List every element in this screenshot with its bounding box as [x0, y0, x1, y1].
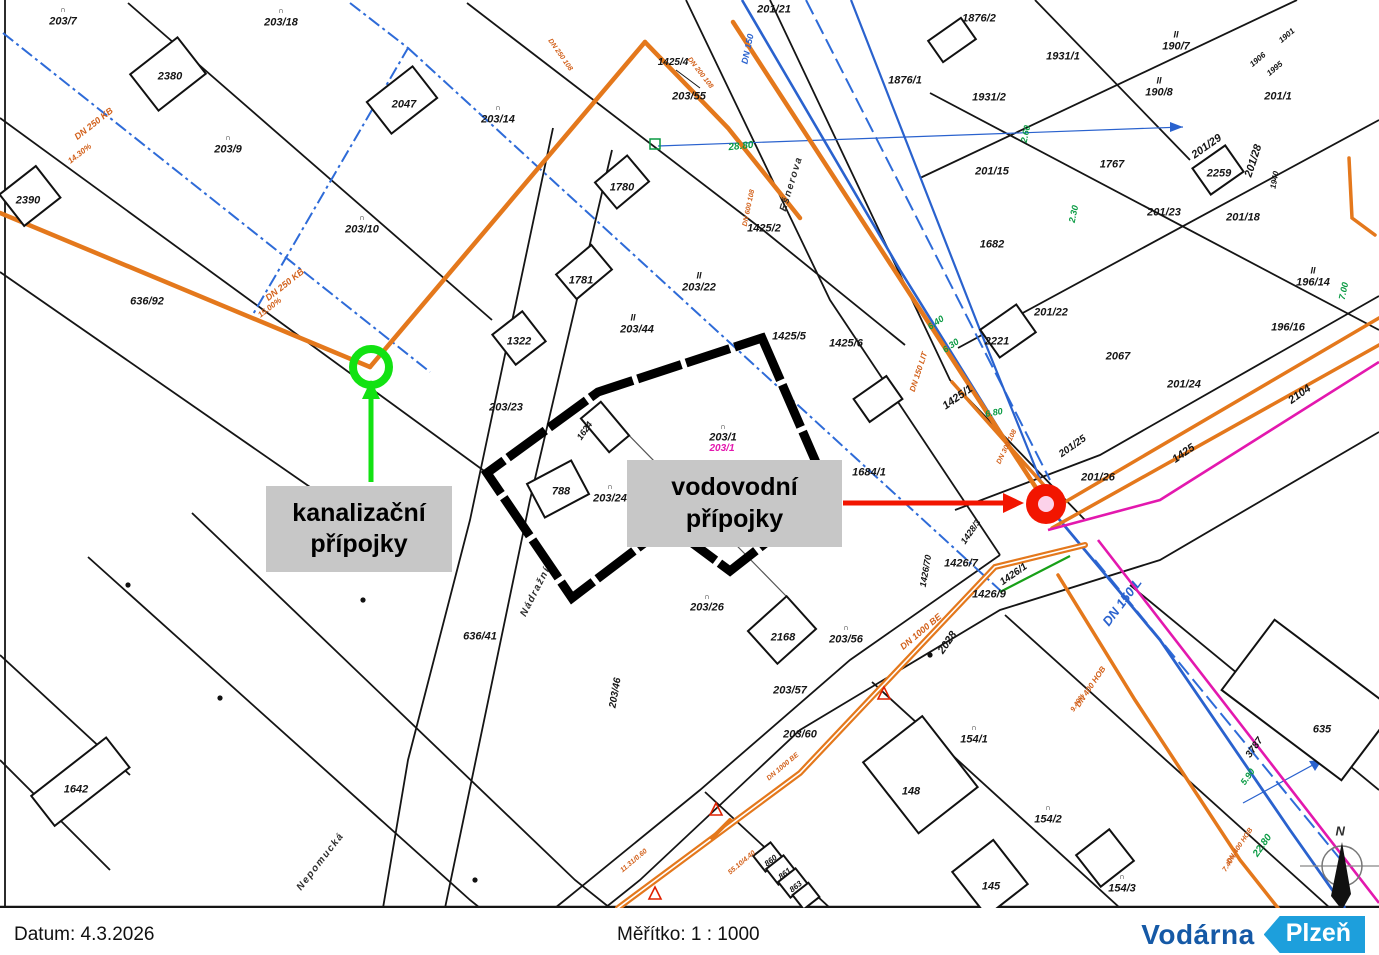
date-label: Datum: 4.3.2026	[14, 924, 154, 946]
callout-water-label: vodovodní přípojky	[627, 460, 842, 547]
vodarna-plzen-logo: Vodárna Plzeň	[1141, 916, 1365, 953]
map-linework	[0, 0, 1379, 908]
logo-city: Plzeň	[1286, 919, 1351, 947]
building-outline	[928, 18, 976, 62]
parcel-lines	[0, 0, 1379, 908]
water-connection-marker	[843, 484, 1066, 524]
building-outline	[854, 376, 903, 422]
building-outline	[1222, 620, 1379, 781]
building-outline	[1076, 829, 1134, 886]
building-outline	[31, 737, 129, 825]
building-outline	[527, 460, 589, 517]
logo-city-tag: Plzeň	[1264, 916, 1365, 953]
boundary-dashdot-lines	[3, 0, 1345, 865]
callout-sewer-line1: kanalizační	[266, 498, 452, 529]
building-outline	[595, 155, 649, 208]
building-outline	[130, 37, 206, 110]
callout-sewer-label: kanalizační přípojky	[266, 486, 452, 572]
building-outline	[1192, 145, 1243, 194]
callout-water-line1: vodovodní	[627, 472, 842, 503]
building-outline	[556, 245, 612, 299]
building-outline	[367, 66, 437, 133]
building-outline	[748, 596, 816, 663]
red-arrowhead	[1003, 493, 1024, 513]
map-footer: Datum: 4.3.2026 Měřítko: 1 : 1000 Vodárn…	[0, 908, 1379, 955]
measure-arrowhead	[1170, 122, 1183, 132]
callout-water-line2: přípojky	[627, 504, 842, 535]
red-circle-center	[1038, 496, 1054, 512]
callout-sewer-line2: přípojky	[266, 529, 452, 560]
building-outline	[581, 402, 629, 452]
scale-label: Měřítko: 1 : 1000	[617, 924, 760, 946]
map-document: ∩203/7∩203/1823802047∩203/9∩203/142390∩2…	[0, 0, 1379, 955]
map-canvas: ∩203/7∩203/1823802047∩203/9∩203/142390∩2…	[0, 0, 1379, 908]
building-outline	[952, 840, 1027, 908]
building-outline	[492, 311, 545, 364]
building-outline	[863, 716, 978, 833]
logo-wordmark: Vodárna	[1141, 919, 1254, 951]
